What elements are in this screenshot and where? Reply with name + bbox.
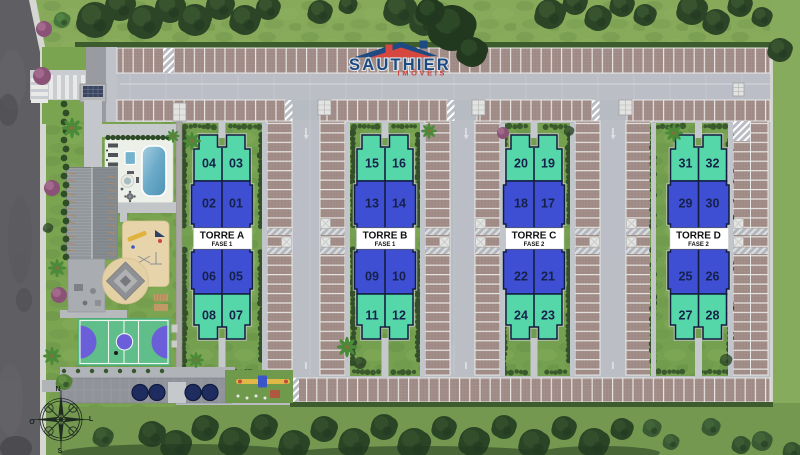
svg-text:FASE 1: FASE 1: [212, 242, 233, 248]
svg-text:32: 32: [706, 157, 720, 171]
svg-text:13: 13: [365, 197, 379, 211]
svg-text:06: 06: [202, 270, 216, 284]
svg-text:IMÓVEIS: IMÓVEIS: [398, 69, 447, 78]
svg-text:O: O: [29, 419, 35, 426]
svg-text:05: 05: [229, 270, 243, 284]
svg-text:TORRE A: TORRE A: [200, 231, 244, 242]
svg-text:18: 18: [514, 197, 528, 211]
svg-text:30: 30: [706, 197, 720, 211]
svg-text:19: 19: [541, 157, 555, 171]
svg-text:02: 02: [202, 197, 216, 211]
svg-text:FASE 1: FASE 1: [375, 242, 396, 248]
svg-text:03: 03: [229, 157, 243, 171]
svg-text:FASE 2: FASE 2: [688, 242, 709, 248]
svg-text:L: L: [89, 416, 94, 423]
svg-text:23: 23: [541, 309, 555, 323]
svg-text:TORRE C: TORRE C: [512, 231, 557, 242]
svg-text:21: 21: [541, 270, 555, 284]
svg-text:14: 14: [392, 197, 406, 211]
svg-text:27: 27: [679, 309, 693, 323]
svg-text:08: 08: [202, 309, 216, 323]
svg-text:S: S: [58, 448, 63, 455]
svg-text:04: 04: [202, 157, 216, 171]
svg-text:10: 10: [392, 270, 406, 284]
svg-text:12: 12: [392, 309, 406, 323]
svg-text:16: 16: [392, 157, 406, 171]
svg-text:31: 31: [679, 157, 693, 171]
svg-text:26: 26: [706, 270, 720, 284]
svg-text:17: 17: [541, 197, 555, 211]
svg-text:FASE 2: FASE 2: [524, 242, 545, 248]
svg-text:TORRE B: TORRE B: [363, 231, 408, 242]
svg-text:N: N: [55, 386, 60, 393]
svg-text:15: 15: [365, 157, 379, 171]
svg-text:09: 09: [365, 270, 379, 284]
svg-text:TORRE D: TORRE D: [676, 231, 721, 242]
svg-text:01: 01: [229, 197, 243, 211]
svg-text:07: 07: [229, 309, 243, 323]
svg-text:29: 29: [679, 197, 693, 211]
svg-text:24: 24: [514, 309, 528, 323]
svg-text:11: 11: [365, 309, 378, 323]
svg-text:28: 28: [706, 309, 720, 323]
svg-text:22: 22: [514, 270, 528, 284]
svg-text:20: 20: [514, 157, 528, 171]
svg-text:25: 25: [679, 270, 693, 284]
